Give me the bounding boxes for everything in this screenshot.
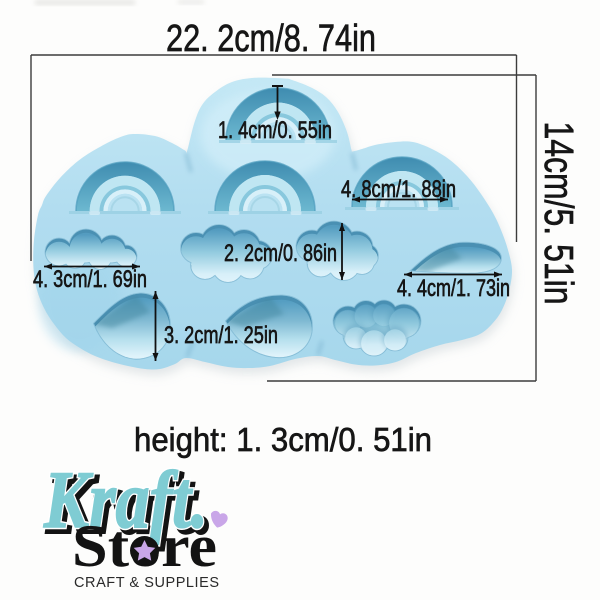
svg-text:14cm/5. 51in: 14cm/5. 51in [536, 122, 582, 305]
svg-text:4. 8cm/1. 88in: 4. 8cm/1. 88in [341, 176, 456, 203]
svg-text:3. 2cm/1. 25in: 3. 2cm/1. 25in [164, 322, 278, 349]
svg-text:4. 3cm/1. 69in: 4. 3cm/1. 69in [33, 266, 147, 293]
svg-text:height: 1. 3cm/0. 51in: height: 1. 3cm/0. 51in [134, 421, 432, 458]
svg-text:CRAFT & SUPPLIES: CRAFT & SUPPLIES [74, 575, 219, 591]
svg-text:4. 4cm/1. 73in: 4. 4cm/1. 73in [397, 275, 510, 302]
svg-text:2. 2cm/0. 86in: 2. 2cm/0. 86in [224, 240, 337, 267]
svg-text:22. 2cm/8. 74in: 22. 2cm/8. 74in [166, 18, 376, 60]
svg-text:1. 4cm/0. 55in: 1. 4cm/0. 55in [218, 117, 332, 144]
